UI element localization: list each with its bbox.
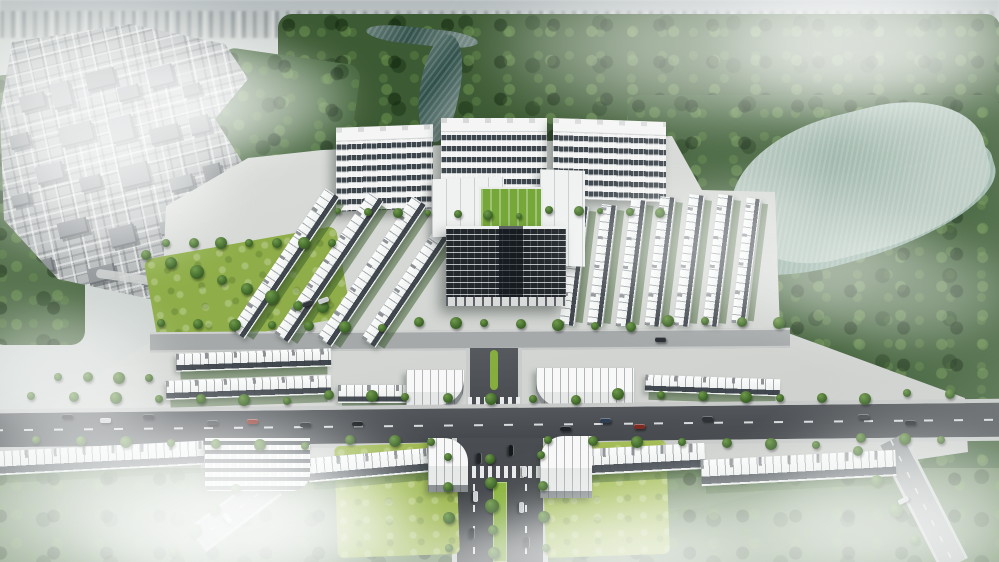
- cloud: [750, 420, 999, 562]
- cloud: [470, 465, 999, 562]
- cloud: [0, 0, 290, 210]
- cloud: [700, 0, 999, 120]
- cloud: [470, 0, 999, 140]
- cloud: [70, 465, 440, 562]
- cloud: [0, 395, 430, 562]
- cloud: [340, 515, 760, 562]
- cloud: [140, 40, 360, 160]
- clouds-layer: [0, 0, 999, 562]
- cloud: [0, 295, 180, 465]
- cloud: [755, 225, 999, 355]
- cloud: [0, 120, 240, 270]
- aerial-render-scene: [0, 0, 999, 562]
- cloud: [555, 165, 945, 325]
